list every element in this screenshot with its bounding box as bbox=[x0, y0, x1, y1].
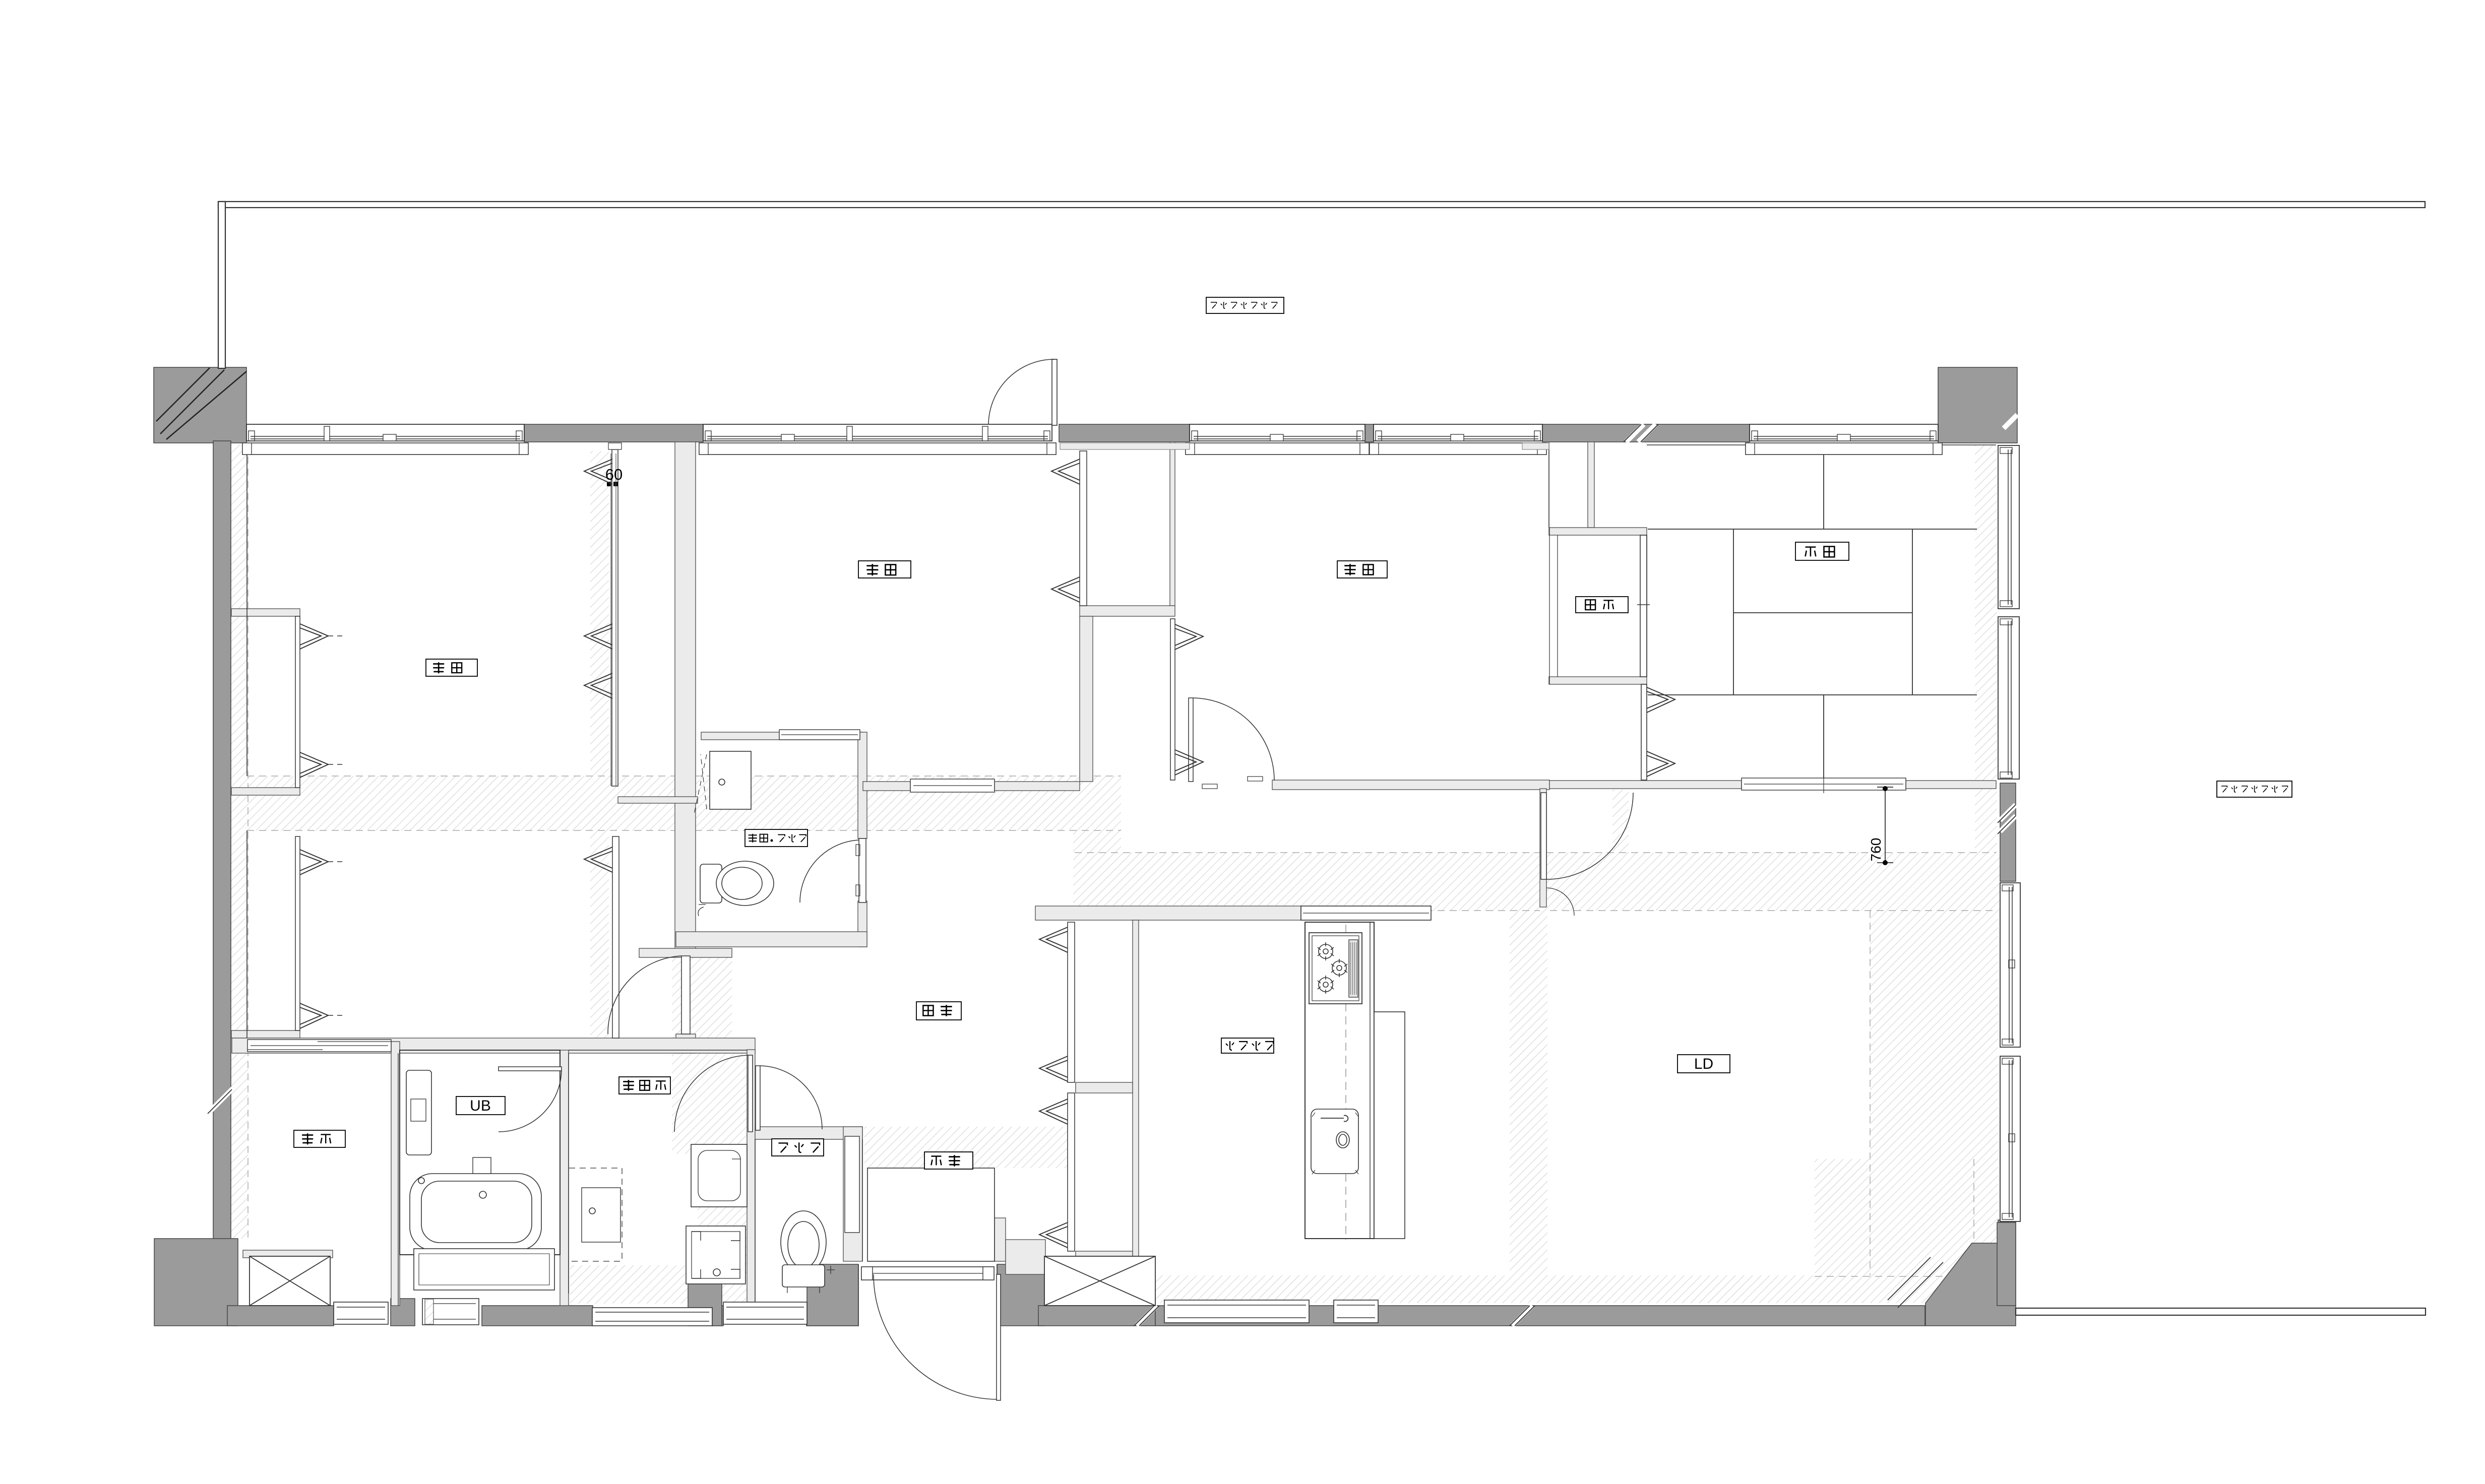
svg-text:760: 760 bbox=[1868, 838, 1884, 862]
svg-text:UB: UB bbox=[470, 1098, 491, 1114]
svg-text:60: 60 bbox=[605, 466, 623, 483]
svg-text:LD: LD bbox=[1694, 1056, 1713, 1072]
